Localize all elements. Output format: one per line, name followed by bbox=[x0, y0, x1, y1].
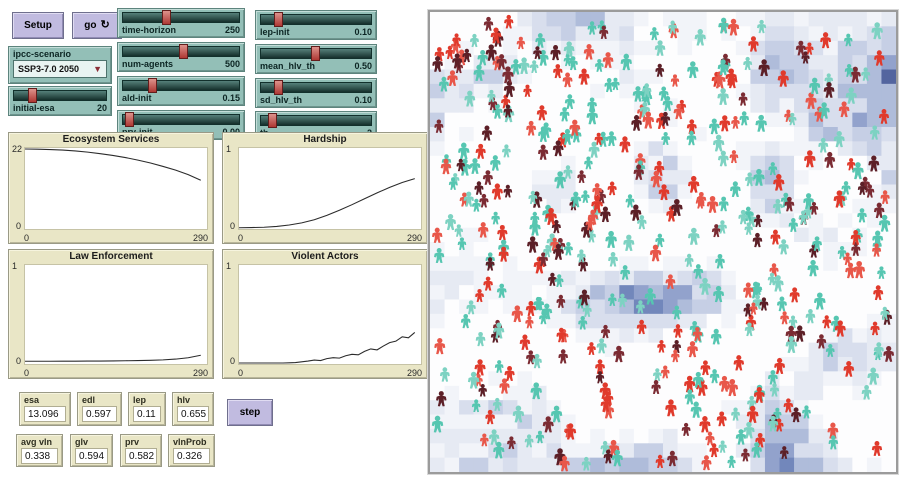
slider-handle[interactable] bbox=[274, 12, 283, 27]
y-axis-max-label: 1 bbox=[12, 261, 17, 271]
monitor-label: vlnProb bbox=[173, 437, 210, 447]
slider-label: num-agents bbox=[122, 59, 173, 69]
plot-curve bbox=[239, 332, 415, 363]
monitor-label: hlv bbox=[177, 395, 209, 405]
monitor-esa: esa13.096 bbox=[19, 392, 71, 426]
slider-value: 250 bbox=[225, 25, 240, 35]
slider-mean_hlv_th[interactable]: mean_hlv_th0.50 bbox=[255, 44, 377, 74]
monitor-label: glv bbox=[75, 437, 108, 447]
chooser-label: ipcc-scenario bbox=[13, 49, 107, 59]
slider-handle[interactable] bbox=[274, 80, 283, 95]
step-button-label: step bbox=[240, 407, 261, 418]
slider-time-horizon[interactable]: time-horizon250 bbox=[117, 8, 245, 38]
y-axis-min-label: 0 bbox=[16, 221, 21, 231]
step-button[interactable]: step bbox=[227, 399, 273, 426]
chooser-value: SSP3-7.0 2050 bbox=[18, 64, 79, 74]
slider-label: ald-init bbox=[122, 93, 152, 103]
slider-handle[interactable] bbox=[311, 46, 320, 61]
slider-caption: mean_hlv_th0.50 bbox=[260, 61, 372, 71]
slider-caption: num-agents500 bbox=[122, 59, 240, 69]
y-axis-max-label: 1 bbox=[226, 144, 231, 154]
plot-curve bbox=[25, 149, 201, 180]
slider-lep-init[interactable]: lep-init0.10 bbox=[255, 10, 377, 40]
slider-label: initial-esa bbox=[13, 103, 55, 113]
monitor-avg-vln: avg vln0.338 bbox=[16, 434, 63, 467]
slider-num-agents[interactable]: num-agents500 bbox=[117, 42, 245, 72]
plot-area bbox=[24, 264, 208, 365]
ipcc-scenario-chooser[interactable]: ipcc-scenario SSP3-7.0 2050 ▼ bbox=[8, 46, 112, 84]
monitor-value: 13.096 bbox=[24, 406, 66, 422]
y-axis-min-label: 0 bbox=[230, 356, 235, 366]
slider-label: mean_hlv_th bbox=[260, 61, 315, 71]
slider-value: 0.50 bbox=[354, 61, 372, 71]
slider-handle[interactable] bbox=[162, 10, 171, 25]
monitor-vlnProb: vlnProb0.326 bbox=[168, 434, 215, 467]
slider-ald-init[interactable]: ald-init0.15 bbox=[117, 76, 245, 106]
slider-caption: time-horizon250 bbox=[122, 25, 240, 35]
monitor-label: esa bbox=[24, 395, 66, 405]
x-axis-min-label: 0 bbox=[238, 368, 243, 378]
plot-title: Ecosystem Services bbox=[9, 134, 213, 145]
chevron-down-icon: ▼ bbox=[93, 64, 102, 74]
slider-caption: sd_hlv_th0.10 bbox=[260, 95, 372, 105]
slider-value: 0.15 bbox=[222, 93, 240, 103]
plot-curve bbox=[239, 179, 415, 228]
monitor-glv: glv0.594 bbox=[70, 434, 113, 467]
y-axis-max-label: 22 bbox=[12, 144, 22, 154]
slider-label: sd_hlv_th bbox=[260, 95, 302, 105]
monitor-value: 0.11 bbox=[133, 406, 161, 422]
monitor-value: 0.594 bbox=[75, 448, 108, 464]
slider-track[interactable] bbox=[122, 114, 240, 125]
x-axis-min-label: 0 bbox=[24, 368, 29, 378]
monitor-value: 0.338 bbox=[21, 448, 58, 464]
x-axis-max-label: 290 bbox=[193, 368, 208, 378]
go-button-label: go bbox=[84, 20, 96, 31]
slider-label: time-horizon bbox=[122, 25, 176, 35]
plot-law-enforcement: Law Enforcement100290 bbox=[8, 249, 214, 379]
slider-handle[interactable] bbox=[268, 113, 277, 128]
x-axis-min-label: 0 bbox=[24, 233, 29, 243]
slider-handle[interactable] bbox=[148, 78, 157, 93]
slider-value: 0.10 bbox=[354, 27, 372, 37]
monitor-value: 0.597 bbox=[82, 406, 117, 422]
slider-initial-esa[interactable]: initial-esa20 bbox=[8, 86, 112, 116]
setup-button-label: Setup bbox=[24, 20, 52, 31]
chooser-value-box[interactable]: SSP3-7.0 2050 ▼ bbox=[13, 60, 107, 78]
monitor-value: 0.582 bbox=[125, 448, 157, 464]
plot-violent-actors: Violent Actors100290 bbox=[222, 249, 428, 379]
plot-title: Violent Actors bbox=[223, 251, 427, 262]
slider-value: 0.10 bbox=[354, 95, 372, 105]
monitor-label: edl bbox=[82, 395, 117, 405]
plot-area bbox=[238, 264, 422, 365]
monitor-value: 0.655 bbox=[177, 406, 209, 422]
y-axis-min-label: 0 bbox=[16, 356, 21, 366]
slider-label: lep-init bbox=[260, 27, 290, 37]
y-axis-max-label: 1 bbox=[226, 261, 231, 271]
monitor-value: 0.326 bbox=[173, 448, 210, 464]
slider-caption: lep-init0.10 bbox=[260, 27, 372, 37]
slider-caption: initial-esa20 bbox=[13, 103, 107, 113]
slider-value: 500 bbox=[225, 59, 240, 69]
plot-curve bbox=[25, 355, 201, 361]
slider-sd_hlv_th[interactable]: sd_hlv_th0.10 bbox=[255, 78, 377, 108]
world-canvas[interactable] bbox=[430, 12, 896, 472]
monitor-edl: edl0.597 bbox=[77, 392, 122, 426]
monitor-label: lep bbox=[133, 395, 161, 405]
plot-area bbox=[238, 147, 422, 230]
plot-ecosystem-services: Ecosystem Services2200290 bbox=[8, 132, 214, 244]
monitor-label: avg vln bbox=[21, 437, 58, 447]
setup-button[interactable]: Setup bbox=[12, 12, 64, 39]
x-axis-max-label: 290 bbox=[407, 368, 422, 378]
slider-handle[interactable] bbox=[179, 44, 188, 59]
netlogo-interface: Setup go ↻ ipcc-scenario SSP3-7.0 2050 ▼… bbox=[0, 0, 900, 480]
plot-title: Hardship bbox=[223, 134, 427, 145]
x-axis-max-label: 290 bbox=[407, 233, 422, 243]
monitor-label: prv bbox=[125, 437, 157, 447]
slider-track[interactable] bbox=[122, 12, 240, 23]
y-axis-min-label: 0 bbox=[230, 221, 235, 231]
monitor-prv: prv0.582 bbox=[120, 434, 162, 467]
slider-track[interactable] bbox=[13, 90, 107, 101]
slider-handle[interactable] bbox=[28, 88, 37, 103]
slider-caption: ald-init0.15 bbox=[122, 93, 240, 103]
go-button[interactable]: go ↻ bbox=[72, 12, 122, 39]
x-axis-max-label: 290 bbox=[193, 233, 208, 243]
forever-icon: ↻ bbox=[101, 20, 110, 31]
world-view[interactable] bbox=[428, 10, 898, 474]
x-axis-min-label: 0 bbox=[238, 233, 243, 243]
slider-value: 20 bbox=[97, 103, 107, 113]
slider-track[interactable] bbox=[122, 80, 240, 91]
monitor-lep: lep0.11 bbox=[128, 392, 166, 426]
monitor-hlv: hlv0.655 bbox=[172, 392, 214, 426]
plot-area bbox=[24, 147, 208, 230]
plot-title: Law Enforcement bbox=[9, 251, 213, 262]
slider-handle[interactable] bbox=[125, 112, 134, 127]
plot-hardship: Hardship100290 bbox=[222, 132, 428, 244]
